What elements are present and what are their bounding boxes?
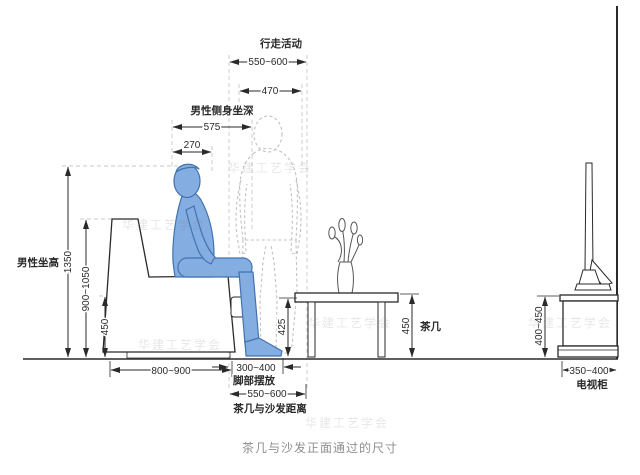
tulip-1 (329, 227, 335, 239)
dim-sofa-table-gap: 550~600 茶几与沙发距离 (230, 384, 307, 415)
diagram-canvas: 1350 900~1050 450 男性坐高 行走活动 550~600 470 … (0, 0, 640, 475)
dim-walking-range-value: 550~600 (248, 57, 288, 68)
dim-sofa-depth: 800~900 (110, 361, 232, 377)
cabinet-plinth (558, 346, 618, 357)
dim-seat-height-value: 450 (100, 318, 111, 335)
watermark-text: 华建工艺学会 (122, 217, 206, 232)
table-top (295, 293, 398, 302)
foot-zone-label: 脚部摆放 (233, 374, 275, 387)
watermark-text: 华建工艺学会 (305, 415, 389, 430)
tv-and-cabinet (558, 6, 618, 359)
dim-total-height: 1350 (63, 167, 74, 357)
dim-head-depth: 270 (173, 140, 211, 152)
watermark-text: 华建工艺学会 (138, 337, 222, 352)
dim-table-height: 450 茶几 (400, 294, 441, 357)
dim-foot-zone: 300~400 脚部摆放 (212, 358, 301, 387)
dim-backrest-height-value: 900~1050 (81, 266, 92, 311)
dim-sofa-table-gap-value: 550~600 (247, 389, 287, 400)
dim-sofa-depth-value: 800~900 (151, 366, 191, 377)
seated-person-shin (239, 272, 259, 344)
dim-shoulder-width-value: 470 (262, 86, 279, 97)
diagram-title: 茶几与沙发正面通过的尺寸 (242, 440, 398, 455)
dim-sit-depth-value: 575 (204, 122, 221, 133)
watermark-text: 华建工艺学会 (528, 315, 612, 330)
dim-sit-depth: 575 (173, 122, 251, 133)
tea-table-label: 茶几 (419, 320, 441, 333)
tulip-3 (351, 222, 357, 234)
dim-leg-clearance: 425 (277, 298, 297, 356)
walking-activity-label: 行走活动 (259, 37, 302, 50)
ergonomics-diagram: 1350 900~1050 450 男性坐高 行走活动 550~600 470 … (0, 0, 640, 475)
tv-cabinet-label: 电视柜 (576, 378, 608, 391)
cabinet-top-board (560, 295, 618, 301)
dim-cabinet-width: 350~400 电视柜 (562, 361, 616, 391)
dim-table-height-value: 450 (401, 317, 412, 334)
tea-table (295, 219, 398, 358)
dim-shoulder-width: 470 (240, 86, 301, 97)
tv-stand-base (575, 284, 611, 290)
side-sit-depth-label: 男性侧身坐深 (191, 104, 254, 117)
tulip-4 (357, 235, 362, 245)
tulip-2 (339, 219, 345, 232)
dim-leg-clearance-value: 425 (277, 318, 288, 335)
dim-cabinet-width-value: 350~400 (569, 366, 609, 377)
watermark-text: 华建工艺学会 (228, 160, 312, 175)
dim-head-depth-value: 270 (184, 140, 201, 151)
dim-foot-zone-value: 300~400 (236, 363, 276, 374)
watermark-text: 华建工艺学会 (308, 315, 392, 330)
male-sit-height-label: 男性坐高 (17, 256, 59, 269)
dim-total-height-value: 1350 (63, 250, 74, 273)
tv-panel (585, 163, 593, 270)
sofa-table-gap-label: 茶几与沙发距离 (232, 402, 307, 415)
dim-backrest-height: 900~1050 (81, 220, 92, 357)
vase (338, 262, 354, 293)
dim-walking-range: 550~600 (230, 57, 306, 68)
